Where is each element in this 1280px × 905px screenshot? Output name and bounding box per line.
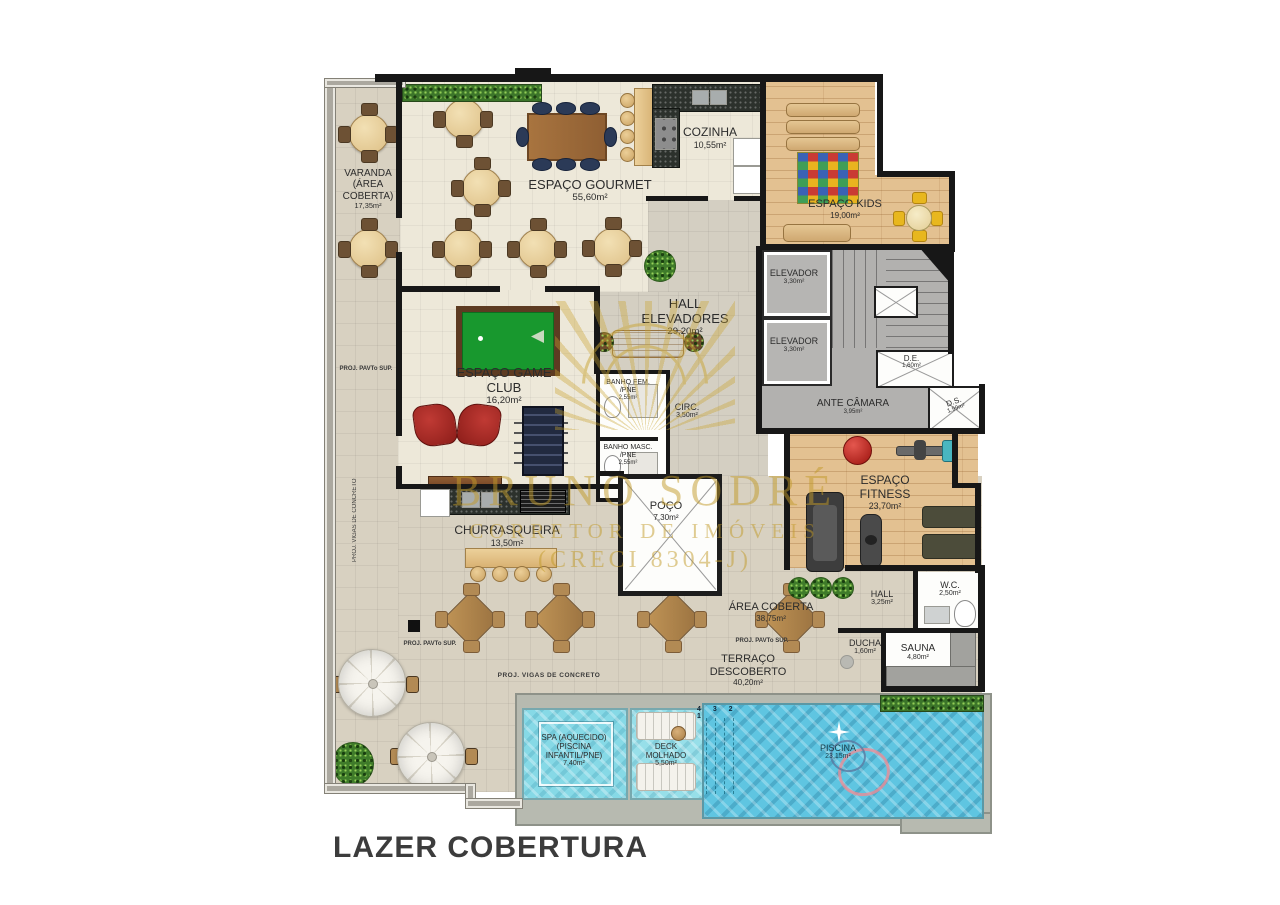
- chair: [479, 241, 492, 258]
- bike-seat: [865, 535, 877, 545]
- bar-stool: [620, 147, 635, 162]
- room-area: 1,60m²: [836, 648, 894, 656]
- kids-table-set: [893, 192, 943, 242]
- plant: [810, 577, 832, 599]
- round-table: [506, 217, 568, 279]
- room-name: PISCINA: [798, 743, 878, 753]
- chair: [433, 111, 446, 128]
- label-area-coberta: ÁREA COBERTA 38,75m²: [714, 601, 828, 623]
- table-top: [443, 229, 483, 269]
- shaft-poco: [618, 474, 722, 596]
- label-deck-molhado: DECK MOLHADO 5,50m²: [637, 742, 695, 768]
- shower-ducha: [840, 655, 854, 669]
- chair: [694, 611, 707, 628]
- exercise-ball: [843, 436, 872, 465]
- chair: [361, 103, 378, 116]
- chair: [498, 180, 511, 197]
- chair: [361, 150, 378, 163]
- label-circ: CIRC. 3,50m²: [663, 402, 711, 420]
- room-area: 3,50m²: [663, 412, 711, 420]
- wall-segment: [838, 628, 985, 633]
- wc-sink: [924, 606, 950, 624]
- chair: [554, 241, 567, 258]
- kids-chair: [931, 211, 943, 226]
- chair: [507, 241, 520, 258]
- chair: [338, 241, 351, 258]
- wall-segment: [760, 80, 766, 248]
- wall-segment: [545, 286, 600, 292]
- round-table: [337, 217, 399, 279]
- round-table: [337, 102, 399, 164]
- label-wc: W.C. 2,50m²: [922, 580, 978, 598]
- terrace-table: [524, 582, 596, 654]
- chair: [463, 640, 480, 653]
- chair: [530, 265, 547, 278]
- room-name: D.E.: [884, 354, 939, 363]
- page-title: LAZER COBERTURA: [333, 831, 648, 865]
- room-name: DUCHA: [836, 638, 894, 648]
- kids-bench: [786, 103, 860, 117]
- room-name: TERRAÇO DESCOBERTO: [698, 653, 798, 678]
- wall-segment: [396, 286, 500, 292]
- table-top: [533, 591, 590, 648]
- room-name: ELEVADOR: [764, 268, 824, 278]
- wall-segment: [734, 196, 764, 201]
- chair: [637, 611, 650, 628]
- label-espaco-gourmet: ESPAÇO GOURMET 55,60m²: [515, 178, 665, 204]
- room-name: VARANDA (ÁREA COBERTA): [333, 168, 403, 202]
- hedge-gourmet: [402, 84, 542, 102]
- sauna-bench: [886, 666, 976, 688]
- dining-chair: [516, 127, 529, 147]
- exercise-bike: [860, 514, 882, 568]
- chair: [582, 240, 595, 257]
- chair: [605, 264, 622, 277]
- annotation-proj-vigas-horizontal: PROJ. VIGAS DE CONCRETO: [497, 672, 601, 679]
- treadmill: [806, 492, 844, 572]
- room-name: ESPAÇO GAME CLUB: [448, 366, 560, 396]
- outer-wall-band: [324, 783, 476, 794]
- room-area: 4,80m²: [888, 654, 948, 662]
- chair: [525, 611, 538, 628]
- dining-chair: [532, 102, 552, 115]
- label-game-club: ESPAÇO GAME CLUB 16,20m²: [448, 366, 560, 407]
- pool-step-line: [706, 718, 707, 794]
- label-churrasqueira: CHURRASQUEIRA 13,50m²: [448, 524, 566, 548]
- chair: [456, 135, 473, 148]
- kids-bench: [786, 120, 860, 134]
- cue-ball: [478, 336, 483, 341]
- room-name: CHURRASQUEIRA: [448, 524, 566, 538]
- chair: [530, 218, 547, 231]
- kitchen-sink: [710, 90, 727, 105]
- wall-segment: [600, 437, 658, 441]
- dining-chair: [556, 158, 576, 171]
- outer-wall-band: [465, 798, 523, 809]
- chair: [474, 204, 491, 217]
- table-top: [443, 591, 500, 648]
- label-banho-fem: BANHO FEM. /PNE 2,55m²: [599, 379, 657, 402]
- kids-chair: [912, 192, 927, 204]
- chair: [338, 126, 351, 143]
- room-name: ESPAÇO FITNESS: [840, 474, 930, 501]
- room-area: 13,50m²: [448, 538, 566, 548]
- pool-step-line: [715, 718, 716, 794]
- room-name: ESPAÇO GOURMET: [515, 178, 665, 193]
- label-banho-masc: BANHO MASC. /PNE 2,55m²: [599, 444, 657, 467]
- chair: [451, 180, 464, 197]
- room-name: HALL ELEVADORES: [625, 297, 745, 327]
- bar-stool: [620, 129, 635, 144]
- chair: [455, 265, 472, 278]
- room-name: HALL: [856, 589, 908, 599]
- kids-chair: [912, 230, 927, 242]
- wall-segment: [949, 171, 955, 252]
- cabinet: [420, 489, 450, 517]
- room-name: DECK MOLHADO: [637, 742, 695, 760]
- annotation-pool-steps: 4 3 2 1: [697, 706, 743, 720]
- room-name: SPA (AQUECIDO) (PISCINA INFANTIL/PNE): [537, 733, 611, 760]
- wall-segment: [396, 292, 402, 436]
- label-cozinha: COZINHA 10,55m²: [660, 126, 760, 150]
- room-area: 55,60m²: [515, 193, 665, 204]
- room-area: 38,75m²: [714, 614, 828, 623]
- bar-stool: [470, 566, 486, 582]
- round-table: [581, 216, 643, 278]
- label-elevador-1: ELEVADOR 3,30m²: [764, 268, 824, 286]
- chair: [463, 583, 480, 596]
- room-area: 3,30m²: [764, 346, 824, 354]
- plant: [832, 577, 854, 599]
- bar-stool: [514, 566, 530, 582]
- toilet: [954, 600, 976, 627]
- room-name: ESPAÇO KIDS: [790, 198, 900, 211]
- chair: [406, 676, 419, 693]
- pool-step-line: [724, 718, 725, 794]
- chair: [665, 640, 682, 653]
- label-spa: SPA (AQUECIDO) (PISCINA INFANTIL/PNE) 7,…: [537, 733, 611, 768]
- label-sauna: SAUNA 4,80m²: [888, 643, 948, 662]
- chair: [492, 611, 505, 628]
- black-column: [408, 620, 420, 632]
- label-varanda: VARANDA (ÁREA COBERTA) 17,35m²: [333, 168, 403, 211]
- wall-segment: [756, 246, 762, 434]
- room-name: POÇO: [630, 500, 702, 513]
- chair: [432, 241, 445, 258]
- chair: [605, 217, 622, 230]
- wall-segment: [788, 428, 958, 434]
- wall-segment: [375, 74, 882, 82]
- round-table: [431, 217, 493, 279]
- room-area: 2,55m²: [599, 395, 657, 402]
- wall-segment: [594, 290, 600, 374]
- room-area: 23,15m²: [798, 753, 878, 761]
- table-top: [462, 168, 502, 208]
- floor-plan: VARANDA (ÁREA COBERTA) 17,35m² ESPAÇO GO…: [0, 0, 1280, 905]
- room-area: 16,20m²: [448, 396, 560, 407]
- bar-stool: [620, 111, 635, 126]
- kids-bench: [783, 224, 851, 242]
- dining-table: [527, 113, 607, 161]
- table-top: [593, 228, 633, 268]
- room-name: SAUNA: [888, 643, 948, 654]
- wall-segment: [881, 686, 985, 692]
- room-area: 5,50m²: [637, 760, 695, 768]
- table-top: [444, 99, 484, 139]
- chair: [553, 583, 570, 596]
- chair: [465, 748, 478, 765]
- dining-chair: [532, 158, 552, 171]
- room-area: 19,00m²: [790, 211, 900, 220]
- lounger-head: [671, 726, 686, 741]
- bbq-sink: [462, 492, 480, 508]
- bar-stool: [492, 566, 508, 582]
- room-area: 7,40m²: [537, 760, 611, 768]
- room-area: 10,55m²: [660, 140, 760, 150]
- plant: [788, 577, 810, 599]
- wall-segment: [784, 430, 790, 570]
- dining-chair: [580, 102, 600, 115]
- gym-bench: [922, 506, 979, 528]
- chair: [582, 611, 595, 628]
- play-mat: [797, 152, 859, 204]
- room-name: COZINHA: [660, 126, 760, 140]
- room-area: 3,95m²: [795, 409, 911, 416]
- lounger: [636, 712, 696, 740]
- bar-stool: [620, 93, 635, 108]
- room-area: 40,20m²: [698, 678, 798, 687]
- annotation-proj-pavto: PROJ. PAVTo SUP.: [732, 638, 792, 644]
- room-name: W.C.: [922, 580, 978, 590]
- table-top: [645, 591, 702, 648]
- kitchen-sink: [692, 90, 709, 105]
- label-hall: HALL 3,25m²: [856, 589, 908, 607]
- room-area: 17,35m²: [333, 202, 403, 210]
- label-elevador-2: ELEVADOR 3,30m²: [764, 336, 824, 354]
- plant: [644, 250, 676, 282]
- round-table: [450, 156, 512, 218]
- table-top: [349, 114, 389, 154]
- bbq-bar-table: [465, 548, 557, 568]
- foosball-table: [522, 406, 564, 476]
- label-piscina: PISCINA 23,15m²: [798, 743, 878, 761]
- wall-segment: [978, 565, 985, 692]
- wall-segment: [913, 571, 918, 631]
- room-name: BANHO FEM. /PNE: [599, 379, 657, 395]
- chair: [629, 240, 642, 257]
- fridge: [733, 166, 763, 194]
- wall-segment: [975, 483, 981, 573]
- label-ante-camara: ANTE CÂMARA 3,95m²: [795, 398, 911, 416]
- plant: [332, 742, 374, 786]
- annotation-proj-vigas-vertical: PROJ. VIGAS DE CONCRETO: [352, 442, 366, 562]
- chair: [361, 218, 378, 231]
- room-area: 3,30m²: [764, 278, 824, 286]
- wall-segment: [515, 68, 551, 76]
- room-name: CIRC.: [663, 402, 711, 412]
- rowing-seat: [914, 440, 926, 460]
- chair: [361, 265, 378, 278]
- room-area: 29,20m²: [625, 327, 745, 338]
- ball-rack: [531, 330, 544, 343]
- table-top: [518, 229, 558, 269]
- gym-bench: [922, 534, 979, 559]
- chair: [474, 157, 491, 170]
- treadmill-belt: [813, 505, 837, 561]
- wall-segment: [877, 74, 883, 177]
- pool-step-line: [733, 718, 734, 794]
- label-espaco-kids: ESPAÇO KIDS 19,00m²: [790, 198, 900, 220]
- room-area: 3,25m²: [856, 599, 908, 607]
- room-name: BANHO MASC. /PNE: [599, 444, 657, 460]
- bbq-sink: [481, 492, 499, 508]
- room-area: 7,30m²: [630, 513, 702, 522]
- stair-landing: [874, 286, 918, 318]
- chair: [455, 218, 472, 231]
- bar-stool: [536, 566, 552, 582]
- dining-chair: [580, 158, 600, 171]
- chair: [553, 640, 570, 653]
- chair: [435, 611, 448, 628]
- wall-segment: [952, 430, 958, 488]
- umbrella: [338, 649, 406, 717]
- umbrella: [397, 722, 465, 790]
- wall-segment: [979, 384, 985, 432]
- annotation-proj-pavto: PROJ. PAVTo SUP.: [398, 641, 462, 647]
- dining-chair: [604, 127, 617, 147]
- room-name: ELEVADOR: [764, 336, 824, 346]
- label-fitness: ESPAÇO FITNESS 23,70m²: [840, 474, 930, 511]
- room-name: ANTE CÂMARA: [795, 398, 911, 409]
- room-area: 1,60m²: [884, 363, 939, 370]
- annotation-proj-pavto: PROJ. PAVTo SUP.: [336, 366, 396, 372]
- room-area: 2,50m²: [922, 590, 978, 598]
- room-area: 2,55m²: [599, 460, 657, 467]
- table-top: [349, 229, 389, 269]
- wall-segment: [877, 171, 955, 177]
- grill: [520, 490, 566, 513]
- label-de: D.E. 1,60m²: [884, 354, 939, 370]
- label-poco: POÇO 7,30m²: [630, 500, 702, 522]
- label-terraco: TERRAÇO DESCOBERTO 40,20m²: [698, 653, 798, 687]
- room-name: ÁREA COBERTA: [714, 601, 828, 614]
- room-area: 23,70m²: [840, 501, 930, 511]
- wall-segment: [396, 484, 618, 489]
- wall-segment: [596, 471, 624, 476]
- label-hall-elevadores: HALL ELEVADORES 29,20m²: [625, 297, 745, 338]
- label-ducha: DUCHA 1,60m²: [836, 638, 894, 656]
- chair: [480, 111, 493, 128]
- dining-chair: [556, 102, 576, 115]
- kids-bench: [786, 137, 860, 151]
- kids-table-top: [906, 205, 932, 231]
